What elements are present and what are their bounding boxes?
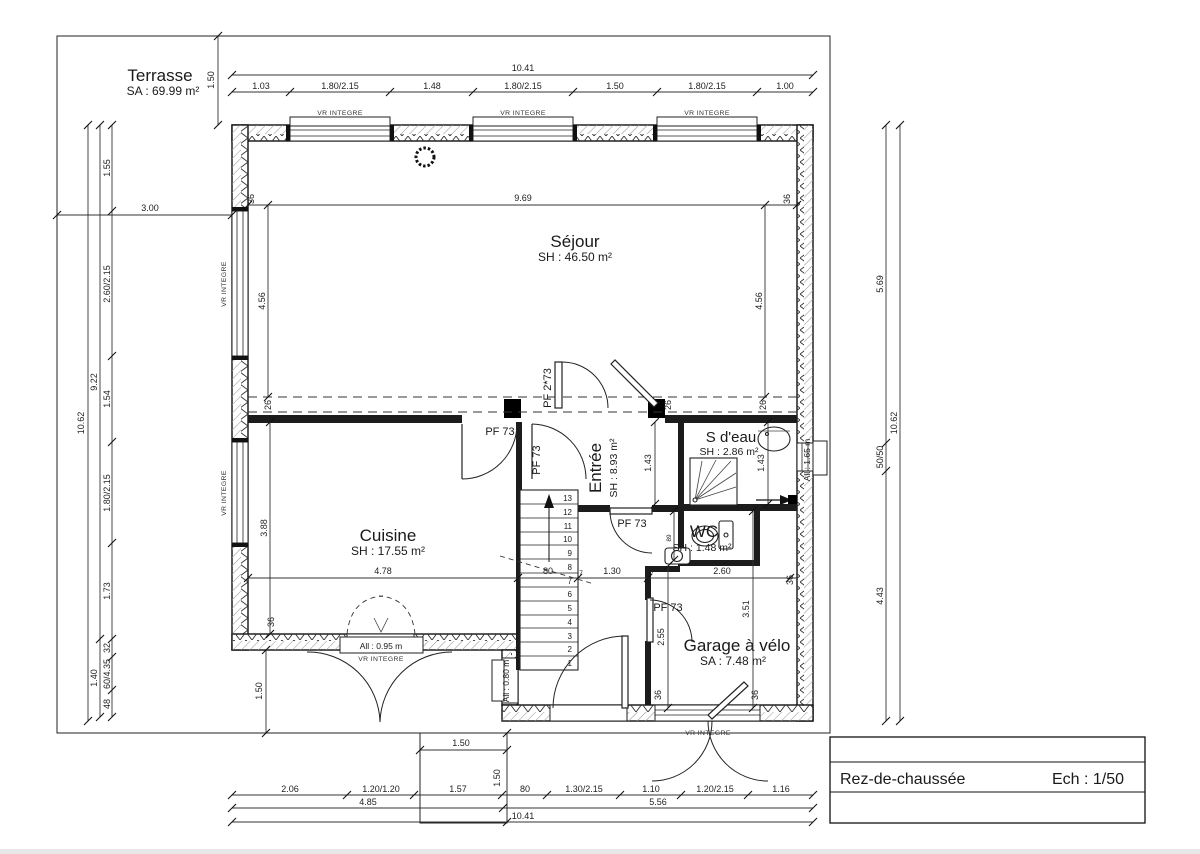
dim-text: 1.30 (603, 566, 621, 576)
door-tag-pf73: PF 73 (617, 518, 646, 530)
dim-text: 36 (653, 690, 663, 700)
dim-text: 1.50 (206, 71, 216, 89)
wall-sdeau-north (665, 415, 797, 423)
dim-text: 26 (263, 400, 273, 410)
front-door-gap (550, 705, 627, 721)
floorplan-drawing: Terrasse SA : 69.99 m² (0, 0, 1200, 849)
dim-text: 4.56 (754, 292, 764, 310)
structural-post (504, 399, 521, 418)
dim-text: 1.80/2.15 (321, 81, 359, 91)
dim-text: 1.54 (102, 390, 112, 408)
dim-text: 50/50 (875, 446, 885, 469)
dim-text: 1.50 (452, 738, 470, 748)
plan-title: Rez-de-chaussée (840, 771, 966, 788)
room-label-cuisine: Cuisine (360, 526, 417, 545)
plan-scale: Ech : 1/50 (1052, 771, 1124, 788)
dim-text: 1.40 (89, 669, 99, 687)
dim-text: 2.60 (713, 566, 731, 576)
wall-wc-east (754, 511, 760, 566)
stair-tread-number: 2 (568, 645, 573, 654)
dim-text: 9.69 (514, 193, 532, 203)
dim-text: 1.50 (606, 81, 624, 91)
dim-text: 1.43 (643, 454, 653, 472)
sill-tag-sdeau: All : 1.65 m (802, 439, 812, 482)
door-tag-pf273: PF 2*73 (542, 368, 554, 408)
dim-text: 1.00 (776, 81, 794, 91)
sill-tag-step: All : 0.80 m (501, 660, 511, 703)
wall-garage-west-lower (645, 641, 651, 705)
wall-hatch (232, 125, 241, 650)
window-sejour-1 (286, 117, 394, 141)
dim-text: 10.41 (512, 63, 535, 73)
stair-tread-number: 8 (568, 563, 573, 572)
wall-corridor-stub (578, 505, 610, 512)
stair-tread-number: 9 (568, 549, 573, 558)
room-label-garage: Garage à vélo (684, 636, 791, 655)
wall-cuisine-north (248, 415, 462, 423)
dim-text: 36 (750, 690, 760, 700)
room-label-terrasse: Terrasse (127, 66, 192, 85)
dim-text: 1.43 (756, 454, 766, 472)
dim-text: 10.62 (76, 412, 86, 435)
stair-tread-number: 11 (564, 522, 573, 531)
dim-text: 80 (520, 784, 530, 794)
window-sejour-3 (653, 117, 761, 141)
dim-text: 1.16 (772, 784, 790, 794)
shower-icon (690, 458, 737, 505)
vr-integre-tag: VR INTEGRE (684, 110, 730, 117)
dim-text: 36 (785, 575, 795, 585)
dim-text: 1.80/2.15 (102, 474, 112, 512)
stair-tread-number: 12 (563, 508, 572, 517)
room-area-garage: SA : 7.48 m² (700, 654, 766, 668)
room-label-sejour: Séjour (550, 232, 599, 251)
dim-text: 36 (266, 617, 276, 627)
stair-tread-number: 13 (563, 494, 572, 503)
room-area-wc: SH : 1.48 m² (673, 542, 732, 554)
dim-text: 1.50 (492, 769, 502, 787)
dim-text: 2.55 (656, 628, 666, 646)
dim-text: 5.69 (875, 275, 885, 293)
stair-tread-number: 3 (568, 632, 573, 641)
stair-tread-number: 10 (563, 535, 572, 544)
room-label-sdeau: S d'eau (706, 429, 756, 446)
sill-tag-cuisine: All : 0.95 m (360, 641, 403, 651)
room-area-entree: SH : 8.93 m² (608, 438, 620, 497)
dim-text: 1.48 (423, 81, 441, 91)
door-double-sejour (555, 360, 658, 408)
room-area-terrasse: SA : 69.99 m² (127, 84, 200, 98)
room-area-sejour: SH : 46.50 m² (538, 250, 612, 264)
garage-door-gap (655, 705, 760, 721)
stair-tread-number: 4 (568, 618, 573, 627)
dim-text: 1.20/2.15 (696, 784, 734, 794)
dim-text: 9.22 (89, 373, 99, 391)
dim-text: 3.00 (141, 203, 159, 213)
dim-text: 4.43 (875, 587, 885, 605)
dim-text: 1.55 (102, 159, 112, 177)
dim-text: 2.60/2.15 (102, 265, 112, 303)
vr-integre-tag: VR INTEGRE (317, 110, 363, 117)
flue-icon (416, 148, 434, 166)
dim-text: 1.10 (642, 784, 660, 794)
dim-text: 1.80/2.15 (688, 81, 726, 91)
dim-text: 26 (758, 400, 768, 410)
dim-text: 3.51 (741, 600, 751, 618)
dim-text: 26 (663, 400, 673, 410)
dim-text: 89 (666, 534, 673, 542)
room-label-entree: Entrée (586, 443, 605, 493)
window-left-2 (232, 438, 248, 547)
room-label-wc: WC (690, 522, 718, 541)
dim-text: 32 (102, 643, 112, 653)
dim-text: 80 (543, 566, 553, 576)
wall-hatch (804, 125, 813, 721)
dim-text: 1.50 (254, 682, 264, 700)
title-block: Rez-de-chaussée Ech : 1/50 (830, 737, 1145, 823)
window-sejour-2 (469, 117, 577, 141)
dim-text: 10.41 (512, 811, 535, 821)
dim-text: 10.62 (889, 412, 899, 435)
vr-integre-tag: VR INTEGRE (500, 110, 546, 117)
vr-integre-tag: VR INTEGRE (221, 261, 228, 307)
dim-text: 4.78 (374, 566, 392, 576)
stair-tread-number: 6 (568, 590, 573, 599)
dim-text: 1.57 (449, 784, 467, 794)
door-tag-pf73: PF 73 (485, 426, 514, 438)
dim-text: 1.03 (252, 81, 270, 91)
vr-integre-tag: VR INTEGRE (221, 470, 228, 516)
floorplan-sheet: Terrasse SA : 69.99 m² (0, 0, 1200, 849)
room-area-cuisine: SH : 17.55 m² (351, 544, 425, 558)
dim-text: 60/4.35 (102, 659, 112, 689)
dim-text: 5.56 (649, 797, 667, 807)
vr-integre-tag: VR INTEGRE (358, 656, 404, 663)
dim-text: 2.06 (281, 784, 299, 794)
dim-text: 1.80/2.15 (504, 81, 542, 91)
dim-text: 4.56 (257, 292, 267, 310)
dim-text: 3.88 (259, 519, 269, 537)
stair-tread-number: 5 (568, 604, 573, 613)
room-area-sdeau: SH : 2.86 m² (700, 446, 759, 458)
dim-text: 36 (782, 194, 792, 204)
door-tag-pf73: PF 73 (531, 445, 543, 474)
entry-arrow-icon (756, 495, 797, 505)
door-wc (610, 508, 652, 553)
fixtures (416, 148, 797, 564)
vr-integre-tag: VR INTEGRE (685, 730, 731, 737)
washbasin-icon (758, 427, 790, 451)
dim-text: 1.73 (102, 582, 112, 600)
dim-text: 48 (102, 699, 112, 709)
window-left-1 (232, 207, 248, 360)
dim-text: 4.85 (359, 797, 377, 807)
wall-insulation (797, 125, 804, 721)
dim-text: 1.20/1.20 (362, 784, 400, 794)
dim-text: 1.30/2.15 (565, 784, 603, 794)
